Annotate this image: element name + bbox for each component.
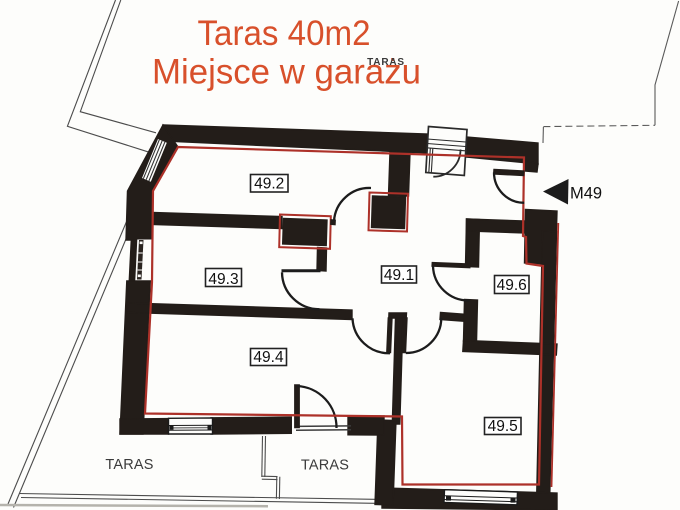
svg-text:49.3: 49.3 [208,271,238,288]
svg-text:49.5: 49.5 [488,418,518,435]
svg-text:49.2: 49.2 [254,176,284,193]
svg-text:49.1: 49.1 [384,267,414,284]
svg-text:49.4: 49.4 [253,349,284,366]
svg-text:Taras 40m2: Taras 40m2 [198,14,371,53]
svg-text:49.6: 49.6 [497,277,527,294]
svg-text:TARAS: TARAS [105,457,153,473]
svg-text:TARAS: TARAS [301,458,349,474]
svg-text:M49: M49 [570,185,602,203]
svg-text:TARAS: TARAS [367,57,405,68]
